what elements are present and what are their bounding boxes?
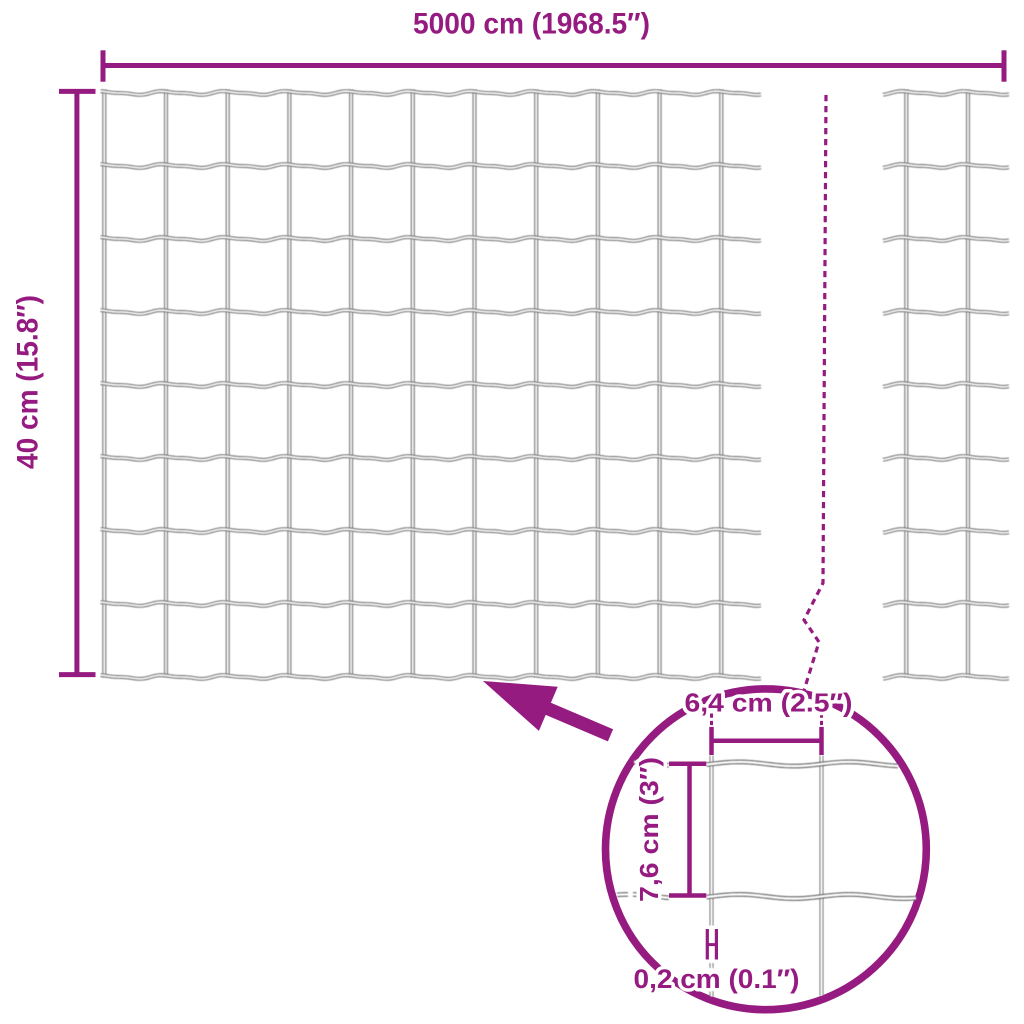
svg-text:40 cm (15.8″): 40 cm (15.8″) xyxy=(12,295,45,469)
svg-text:7,6 cm (3″): 7,6 cm (3″) xyxy=(634,757,664,902)
svg-text:5000 cm (1968.5″): 5000 cm (1968.5″) xyxy=(413,8,650,41)
svg-text:0,2 cm (0.1″): 0,2 cm (0.1″) xyxy=(634,964,800,994)
svg-text:6,4 cm (2.5″): 6,4 cm (2.5″) xyxy=(685,687,853,717)
